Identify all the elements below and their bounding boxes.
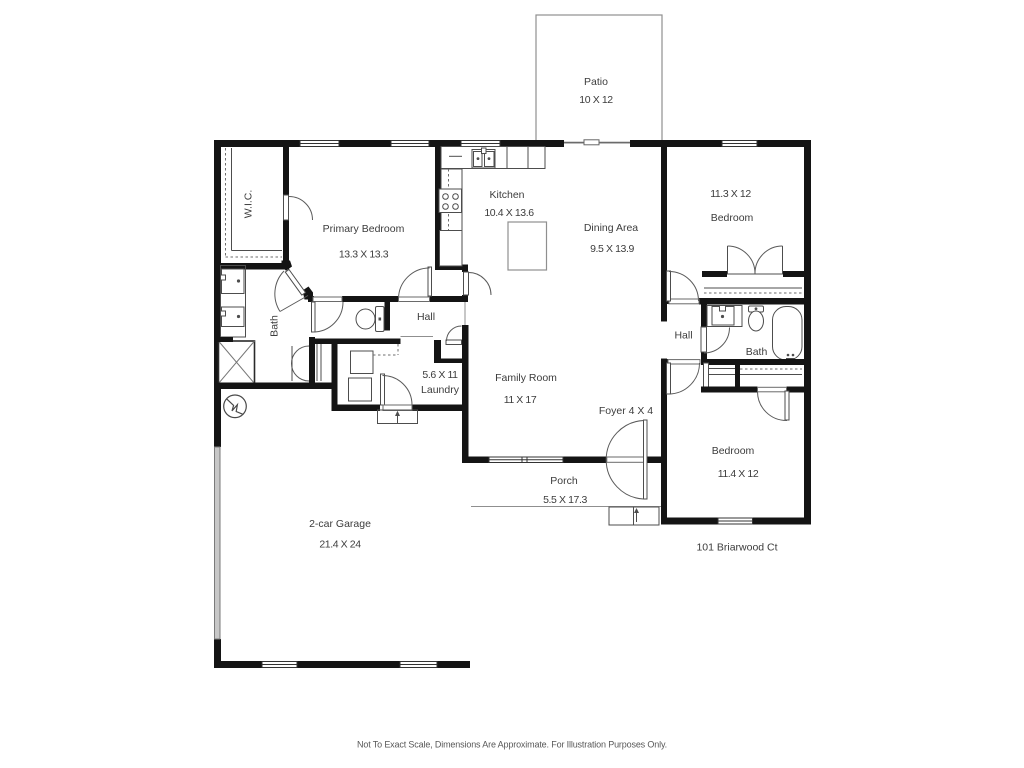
svg-text:13.3 X 13.3: 13.3 X 13.3 bbox=[339, 249, 389, 261]
svg-text:21.4 X 24: 21.4 X 24 bbox=[319, 539, 361, 551]
svg-text:Kitchen: Kitchen bbox=[489, 189, 524, 201]
svg-text:Bath: Bath bbox=[746, 346, 768, 358]
svg-text:Hall: Hall bbox=[674, 330, 692, 342]
svg-text:Not To Exact Scale, Dimensions: Not To Exact Scale, Dimensions Are Appro… bbox=[357, 740, 667, 750]
svg-text:Porch: Porch bbox=[550, 475, 578, 487]
svg-text:Primary Bedroom: Primary Bedroom bbox=[323, 223, 405, 235]
svg-text:Laundry: Laundry bbox=[421, 384, 460, 396]
svg-text:Dining Area: Dining Area bbox=[584, 222, 638, 234]
svg-text:5.5 X 17.3: 5.5 X 17.3 bbox=[543, 494, 587, 506]
svg-text:9.5 X 13.9: 9.5 X 13.9 bbox=[590, 243, 634, 255]
svg-text:101 Briarwood Ct: 101 Briarwood Ct bbox=[696, 542, 777, 554]
svg-text:Foyer 4 X 4: Foyer 4 X 4 bbox=[599, 405, 653, 417]
svg-text:10 X 12: 10 X 12 bbox=[579, 94, 613, 106]
svg-text:Bath: Bath bbox=[269, 315, 281, 337]
svg-text:Hall: Hall bbox=[417, 311, 435, 323]
svg-text:11 X 17: 11 X 17 bbox=[504, 394, 537, 406]
svg-text:2-car Garage: 2-car Garage bbox=[309, 518, 371, 530]
svg-text:W.I.C.: W.I.C. bbox=[243, 190, 255, 219]
svg-text:11.3 X 12: 11.3 X 12 bbox=[710, 188, 751, 200]
svg-text:5.6 X 11: 5.6 X 11 bbox=[422, 369, 458, 381]
svg-text:Bedroom: Bedroom bbox=[711, 212, 754, 224]
svg-text:11.4 X 12: 11.4 X 12 bbox=[718, 468, 759, 480]
svg-text:10.4 X 13.6: 10.4 X 13.6 bbox=[484, 207, 534, 219]
svg-text:Patio: Patio bbox=[584, 76, 608, 88]
svg-text:Bedroom: Bedroom bbox=[712, 445, 755, 457]
svg-text:Family Room: Family Room bbox=[495, 372, 557, 384]
